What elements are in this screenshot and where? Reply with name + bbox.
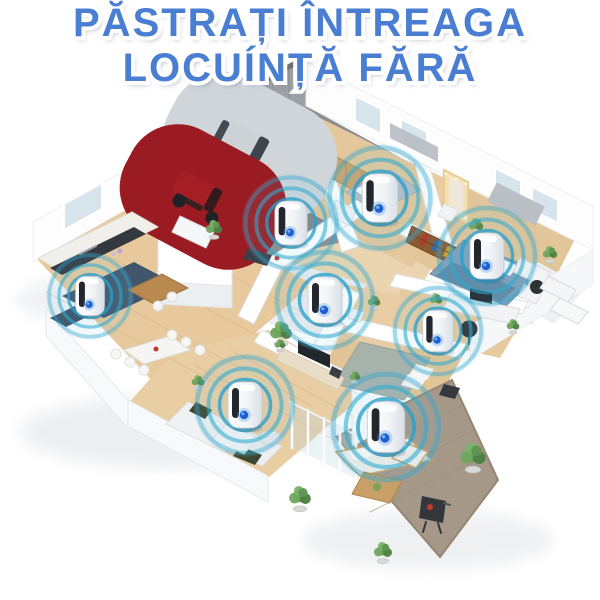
picture-frame	[525, 205, 538, 220]
floorplan-render	[0, 0, 600, 600]
pest-repeller-kitchen	[46, 252, 134, 340]
led-highlight	[287, 230, 290, 233]
mirror-bulb	[464, 182, 467, 185]
dining-chair	[167, 330, 177, 340]
plant-foliage	[471, 445, 482, 456]
dining-chair	[181, 337, 191, 347]
plant-foliage	[354, 372, 359, 377]
plant-foliage	[512, 320, 517, 325]
device-sheen	[319, 280, 335, 286]
pest-repeller-living-room	[193, 353, 297, 457]
plant-pot	[465, 466, 480, 473]
counter-vase	[118, 249, 123, 254]
device-sheen	[379, 405, 397, 412]
led-highlight	[483, 263, 486, 266]
dining-chair	[111, 349, 121, 359]
red-car-wheel	[173, 195, 186, 208]
grill-ember	[427, 504, 433, 510]
device-sheen	[433, 313, 447, 318]
floorplan-svg	[0, 0, 600, 600]
kitchen-chair	[167, 292, 177, 302]
plant-foliage	[213, 222, 220, 229]
plant-foliage	[382, 544, 390, 552]
led-indicator	[375, 204, 384, 213]
plant-pot	[293, 506, 306, 512]
led-highlight	[435, 338, 438, 341]
pest-repeller-patio	[329, 370, 443, 484]
led-highlight	[382, 435, 385, 438]
device-sheen	[85, 279, 99, 284]
led-indicator	[286, 229, 294, 237]
picture-frame	[493, 189, 506, 204]
dining-chair	[195, 345, 205, 355]
plant-pot	[209, 235, 219, 239]
device-sheen	[481, 236, 497, 242]
picture-frame	[509, 197, 522, 212]
plant	[289, 486, 311, 512]
plant-pot	[378, 559, 389, 564]
plant-foliage	[298, 488, 307, 497]
pest-repeller-bedroom-top	[325, 143, 434, 252]
dining-chair	[125, 357, 135, 367]
pest-repeller-office	[391, 284, 485, 378]
mirror-bulb	[454, 177, 457, 180]
plant-foliage	[549, 247, 555, 253]
patio-table-plant	[373, 483, 381, 491]
device-sheen	[285, 204, 300, 210]
led-highlight	[321, 307, 324, 310]
plant-pot	[546, 259, 555, 263]
led-indicator	[433, 336, 441, 344]
counter-vase	[111, 252, 115, 256]
plant-pot	[509, 331, 517, 334]
led-indicator	[482, 262, 490, 270]
device-sheen	[239, 385, 255, 391]
dining-centerpiece	[154, 347, 159, 352]
led-highlight	[376, 206, 379, 209]
led-indicator	[380, 433, 389, 442]
led-highlight	[87, 302, 90, 305]
led-highlight	[241, 412, 244, 415]
device-sheen	[374, 177, 391, 183]
plant-foliage	[279, 340, 284, 345]
plant-pot	[277, 349, 284, 352]
dining-chair	[139, 365, 149, 375]
product-marketing-image: PĂSTRAȚI ÎNTREAGA LOCUÍNȚĂ FĂRĂ PĂSTRAȚI…	[0, 0, 600, 600]
kitchen-chair	[153, 301, 163, 311]
pest-repeller-bathroom	[273, 248, 377, 352]
led-indicator	[86, 301, 93, 308]
led-indicator	[240, 411, 248, 419]
led-indicator	[320, 306, 328, 314]
mirror-bulb	[444, 172, 447, 175]
